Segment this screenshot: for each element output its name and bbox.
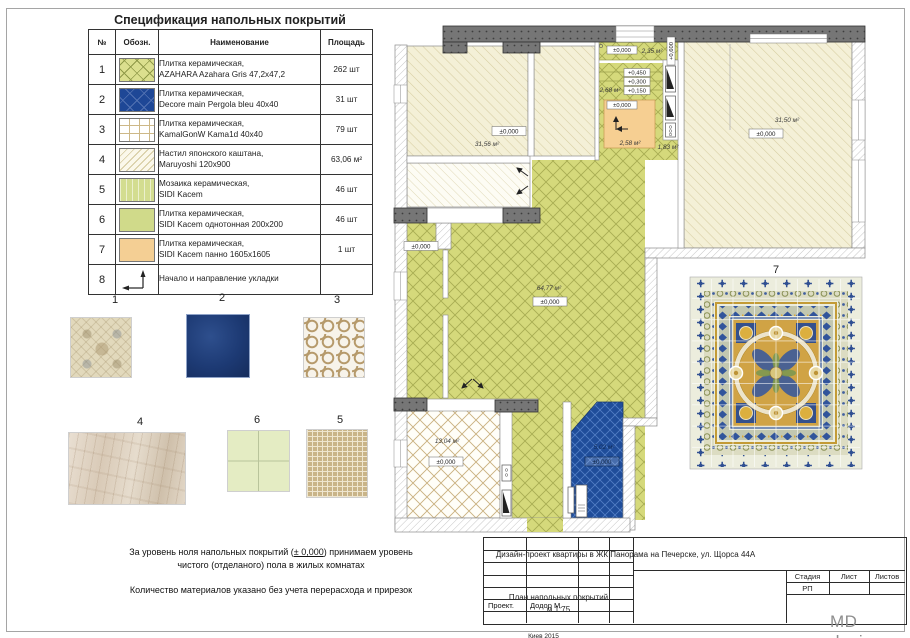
material-sample-2 [186,314,250,378]
drawing-sheet: Спецификация напольных покрытий № Обозн.… [0,0,910,638]
svg-text:±0,000: ±0,000 [757,131,776,138]
svg-text:+0,150: +0,150 [628,89,646,95]
role-label: Проект. [488,601,514,610]
svg-text:±0,000: ±0,000 [613,103,631,109]
spec-table: № Обозн. Наименование Площадь 1 Плитка к… [88,29,373,295]
table-row: 1 Плитка керамическая,AZAHARA Azahara Gr… [89,55,373,85]
room-area-label: 2,58 м² [619,140,642,147]
material-sample-4 [68,432,186,505]
city-year: Киев 2015 [484,622,603,638]
col-header-name: Наименование [159,30,321,55]
general-notes: За уровень ноля напольных покрытий (± 0,… [90,546,452,597]
room-area-label: 13,04 м² [435,438,460,445]
swatch-green-plain [119,208,155,232]
room-area-label: 2,68 м² [599,87,622,94]
level-label: +0,300 [624,78,650,86]
level-label: ±0,000 [429,457,463,466]
level-label: ±0,000 [404,242,438,251]
svg-text:±0,000: ±0,000 [593,459,612,466]
level-label: ±0,000 [749,129,783,138]
table-row: 3 Плитка керамическая,KamalGonW Kama1d 4… [89,115,373,145]
table-row: 2 Плитка керамическая,Decore main Pergol… [89,85,373,115]
swatch-navy-lattice [119,88,155,112]
material-sample-7 [690,277,862,469]
material-sample-1 [70,317,132,378]
room-area-label: 31,56 м² [475,141,500,148]
material-sample-5 [306,429,368,498]
wardrobe-area [534,46,595,156]
svg-text:+0,300: +0,300 [628,80,646,86]
author-name: Додор М. [530,601,562,610]
sample-label-4: 4 [129,416,151,428]
swatch-white-grid [119,118,155,142]
closet-area [407,163,530,207]
level-label: ±0,000 [607,101,637,109]
swatch-green-lattice [119,58,155,82]
sample-label-7: 7 [773,264,779,276]
table-row: 7 Плитка керамическая,SIDI Kacem панно 1… [89,235,373,265]
level-label: +0,600 [667,37,675,65]
svg-text:±0,000: ±0,000 [412,244,431,251]
room-area-label: 1,83 м² [658,144,680,151]
room-area-label: 5,02 м² [594,444,616,451]
material-sample-3 [303,317,365,378]
floor-plan: ±0,000 31,56 м² 31,50 м² ±0,000 64,77 м²… [386,12,884,544]
spec-header-row: № Обозн. Наименование Площадь [89,30,373,55]
level-label: ±0,000 [492,127,526,136]
room-bedroom-right [684,42,852,248]
room-area-label: 31,50 м² [775,117,800,124]
spec-table-title: Спецификация напольных покрытий [88,13,372,27]
sheets-label: Листов [869,570,905,582]
table-row: 8 Начало и направление укладки [89,265,373,295]
svg-text:+0,450: +0,450 [628,71,646,77]
svg-text:±0,000: ±0,000 [437,459,456,466]
stage-value: РП [786,582,829,594]
room-area-label: 64,77 м² [537,285,562,292]
layout-direction-arrow-icon [119,268,155,292]
svg-text:+0,600: +0,600 [669,42,675,60]
svg-text:±0,000: ±0,000 [541,299,560,306]
stage-label: Стадия [786,570,829,582]
spec-table-block: Спецификация напольных покрытий № Обозн.… [88,13,372,295]
sample-label-5: 5 [329,414,351,426]
sample-label-3: 3 [326,294,348,306]
table-row: 5 Мозаика керамическая,SIDI Kacem 46 шт [89,175,373,205]
level-label: +0,150 [624,87,650,95]
sheet-name: План напольных покрытий м 1:75 [484,570,633,622]
room-area-label: 2,35 м² [641,48,664,55]
svg-text:±0,000: ±0,000 [500,129,519,136]
sample-label-2: 2 [211,292,233,304]
swatch-light-green [119,178,155,202]
sheet-label: Лист [829,570,869,582]
md-design-logo: MD design [830,612,910,638]
note-zero-level: За уровень ноля напольных покрытий (± 0,… [90,546,452,572]
col-header-symbol: Обозн. [116,30,159,55]
level-label: +0,450 [624,69,650,77]
entry-door-threshold [527,518,563,532]
table-row: 6 Плитка керамическая,SIDI Kacem однотон… [89,205,373,235]
material-sample-6 [227,430,290,492]
col-header-area: Площадь [321,30,373,55]
sample-label-1: 1 [104,294,126,306]
level-label: ±0,000 [585,457,619,466]
swatch-orange-plain [119,238,155,262]
level-label: ±0,000 [533,297,567,306]
room-bedroom-left [407,46,528,156]
note-materials: Количество материалов указано без учета … [90,584,452,597]
swatch-cream-hatch [119,148,155,172]
col-header-num: № [89,30,116,55]
sample-label-6: 6 [246,414,268,426]
table-row: 4 Настил японского каштана,Maruyoshi 120… [89,145,373,175]
svg-text:±0,000: ±0,000 [613,48,631,54]
level-label: ±0,000 [607,46,637,54]
